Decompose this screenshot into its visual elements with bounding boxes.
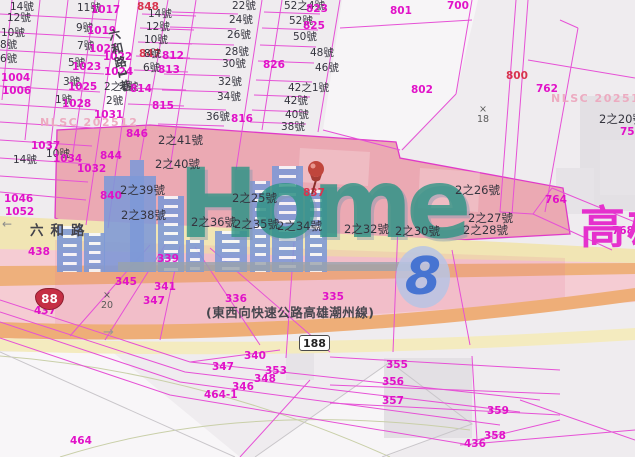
map-label: 30號 xyxy=(222,59,246,70)
map-label: 358 xyxy=(484,431,506,442)
map-label: 8號 xyxy=(0,40,17,51)
map-label: 46號 xyxy=(315,63,339,74)
map-label: 2之32號 xyxy=(344,223,389,235)
map-label: 22號 xyxy=(232,1,256,12)
map-label: 359 xyxy=(487,406,509,417)
map-label: 10號 xyxy=(1,28,25,39)
map-label: 1032 xyxy=(77,164,106,175)
map-label: 2之34號 xyxy=(277,220,322,232)
watermark-number-badge: 8 xyxy=(396,246,450,308)
map-label: 40號 xyxy=(285,110,309,121)
map-label: 2之36號 xyxy=(191,216,236,228)
map-label: 764 xyxy=(545,195,567,206)
map-label: NLSC 202512 xyxy=(551,93,635,105)
map-label: 812 xyxy=(162,51,184,62)
map-label: 36號 xyxy=(206,112,230,123)
map-label: 24號 xyxy=(229,15,253,26)
map-label: 340 xyxy=(244,351,266,362)
map-label: 758 xyxy=(620,127,635,138)
map-label: 356 xyxy=(382,377,404,388)
map-label: 2之30號 xyxy=(395,225,440,237)
map-label: 345 xyxy=(115,277,137,288)
map-label: 2之40號 xyxy=(155,158,200,170)
map-label: 1025 xyxy=(68,82,97,93)
map-label: 802 xyxy=(411,85,433,96)
map-label: 42號 xyxy=(284,96,308,107)
map-label: 341 xyxy=(154,282,176,293)
map-label: 2之20號 xyxy=(599,113,635,125)
map-label: 813 xyxy=(158,65,180,76)
map-label: 2之39號 xyxy=(120,184,165,196)
map-label: 1017 xyxy=(91,5,120,16)
map-label: 26號 xyxy=(227,30,251,41)
map-label: 50號 xyxy=(293,32,317,43)
map-label: 48號 xyxy=(310,48,334,59)
map-label: 336 xyxy=(225,294,247,305)
right-arrow-icon: → xyxy=(103,326,114,340)
map-label: 700 xyxy=(447,1,469,12)
map-label: 六和路 xyxy=(30,224,92,238)
map-label: 10號 xyxy=(144,35,168,46)
map-label: 348 xyxy=(254,374,276,385)
map-label: 1004 xyxy=(1,73,30,84)
map-label: 18 xyxy=(477,115,489,125)
map-label: 1006 xyxy=(2,86,31,97)
map-label: 2之41號 xyxy=(158,134,203,146)
map-label: 20 xyxy=(101,301,113,311)
map-label: 2之26號 xyxy=(455,184,500,196)
map-label: (東西向快速公路高雄潮州線) xyxy=(206,306,374,319)
map-label: 438 xyxy=(28,247,50,258)
county-road-188-number: 188 xyxy=(303,337,326,350)
map-label: 32號 xyxy=(218,77,242,88)
map-label: 12號 xyxy=(7,13,31,24)
map-label: 38號 xyxy=(281,122,305,133)
left-arrow-icon: ← xyxy=(2,218,12,231)
map-label: 14號 xyxy=(13,155,37,166)
map-label: 14號 xyxy=(148,9,172,20)
cadastral-map-canvas[interactable]: Home 8 14號12號10號8號6號1004100611號10179號101… xyxy=(0,0,635,457)
map-label: 347 xyxy=(143,296,165,307)
map-label: 339 xyxy=(157,254,179,265)
city-name-label: 高雄 xyxy=(580,204,635,251)
map-label: 823 xyxy=(306,4,328,15)
watermark-number: 8 xyxy=(405,247,441,307)
map-label: 1023 xyxy=(72,62,101,73)
map-label: 814 xyxy=(130,84,152,95)
map-label: 846 xyxy=(126,129,148,140)
map-label: 815 xyxy=(152,101,174,112)
map-label: 436 xyxy=(464,439,486,450)
map-label: 2號 xyxy=(106,96,123,107)
map-label: 42之1號 xyxy=(288,83,329,94)
map-label: 464-1 xyxy=(204,390,238,401)
map-label: 1046 xyxy=(4,194,33,205)
map-label: 28號 xyxy=(225,47,249,58)
expressway-88-number: 88 xyxy=(41,292,58,306)
map-label: 2之25號 xyxy=(232,192,277,204)
map-label: 464 xyxy=(70,436,92,447)
map-label: 357 xyxy=(382,396,404,407)
map-label: 800 xyxy=(506,71,528,82)
map-label: 8號 xyxy=(144,49,161,60)
county-road-188-shield: 188 xyxy=(299,335,330,351)
map-label: 801 xyxy=(390,6,412,17)
map-label: 347 xyxy=(212,362,234,373)
map-label: 816 xyxy=(231,114,253,125)
map-label: 12號 xyxy=(146,22,170,33)
map-label: 2之35號 xyxy=(234,218,279,230)
map-label: 34號 xyxy=(217,92,241,103)
map-label: NLSC 202512 xyxy=(40,117,138,129)
map-label: 2之38號 xyxy=(121,209,166,221)
map-label: 2之28號 xyxy=(463,224,508,236)
map-label: 355 xyxy=(386,360,408,371)
map-label: 6號 xyxy=(0,54,17,65)
map-label: 840 xyxy=(100,191,122,202)
map-label: 335 xyxy=(322,292,344,303)
map-label: 1028 xyxy=(62,99,91,110)
map-label: 844 xyxy=(100,151,122,162)
map-label: 826 xyxy=(263,60,285,71)
